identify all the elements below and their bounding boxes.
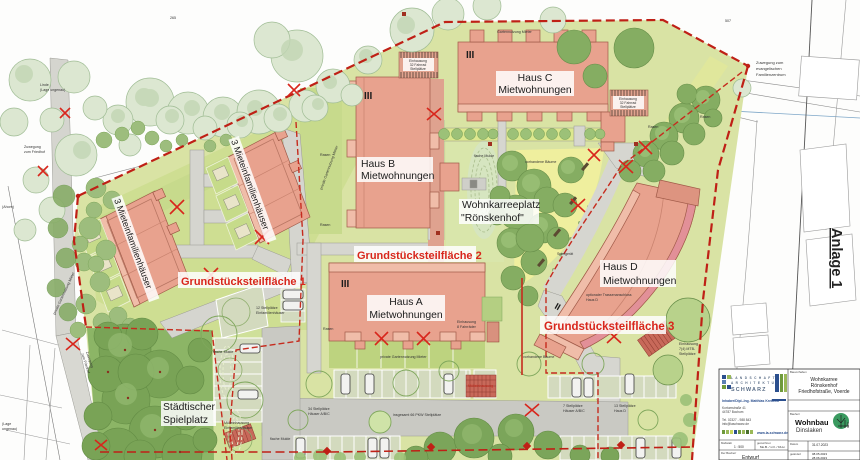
svg-text:265: 265 bbox=[170, 16, 176, 20]
svg-text:(Ahorn): (Ahorn) bbox=[2, 205, 14, 209]
svg-text:Anlage 1: Anlage 1 bbox=[828, 228, 844, 288]
svg-text:evangelischen: evangelischen bbox=[756, 66, 782, 71]
svg-text:vorhandene Bäume: vorhandene Bäume bbox=[523, 355, 554, 359]
svg-text:flache Mulde: flache Mulde bbox=[213, 350, 233, 354]
svg-text:13 Stellplätze: 13 Stellplätze bbox=[614, 404, 636, 408]
svg-text:flache Mulde: flache Mulde bbox=[270, 437, 290, 441]
svg-text:34 Stellplätze: 34 Stellplätze bbox=[308, 407, 330, 411]
svg-text:Einfamilienhäuser: Einfamilienhäuser bbox=[224, 426, 253, 430]
svg-text:Häuser A/B/C: Häuser A/B/C bbox=[563, 409, 585, 413]
svg-text:12 Stellplätze: 12 Stellplätze bbox=[256, 306, 278, 310]
svg-text:III: III bbox=[364, 91, 373, 102]
svg-text:geändert: geändert bbox=[790, 452, 801, 456]
svg-text:Spielgerät: Spielgerät bbox=[557, 252, 573, 256]
svg-text:Rasen: Rasen bbox=[648, 125, 658, 129]
svg-text:Mietwohnungen: Mietwohnungen bbox=[603, 276, 677, 287]
svg-text:Haus D: Haus D bbox=[603, 262, 638, 273]
svg-text:Rasen: Rasen bbox=[323, 327, 333, 331]
svg-text:Stellplätze: Stellplätze bbox=[410, 67, 426, 71]
svg-text:Spielplatz: Spielplatz bbox=[163, 415, 208, 426]
svg-text:Mülleinhausung: Mülleinhausung bbox=[468, 384, 493, 388]
svg-text:Mietwohnungen: Mietwohnungen bbox=[361, 171, 435, 182]
svg-text:Häuser A/B/C: Häuser A/B/C bbox=[308, 412, 330, 416]
svg-text:Bauvorhaben: Bauvorhaben bbox=[790, 370, 807, 374]
svg-text:7 Stellplätze: 7 Stellplätze bbox=[563, 404, 583, 408]
svg-text:7(4) MTB-: 7(4) MTB- bbox=[679, 347, 696, 351]
svg-text:Datum: Datum bbox=[790, 442, 799, 446]
svg-text:28.06.2023: 28.06.2023 bbox=[812, 456, 827, 460]
svg-text:Inhaber/Dipl.-Ing. Matthias Kr: Inhaber/Dipl.-Ing. Matthias Kretteck bbox=[722, 399, 779, 403]
svg-text:Bauherr: Bauherr bbox=[790, 412, 800, 416]
svg-text:"Rönskenhof": "Rönskenhof" bbox=[461, 213, 524, 224]
svg-text:Entwurf: Entwurf bbox=[742, 455, 760, 460]
svg-text:507: 507 bbox=[725, 19, 731, 23]
svg-text:31.07.2023: 31.07.2023 bbox=[812, 443, 828, 447]
svg-text:Einhausung: Einhausung bbox=[457, 320, 476, 324]
svg-text:www.la-schwarz.de: www.la-schwarz.de bbox=[756, 431, 788, 435]
svg-text:III: III bbox=[341, 279, 350, 290]
svg-text:insgesamt 66 PKW Stellplätze: insgesamt 66 PKW Stellplätze bbox=[393, 413, 441, 417]
svg-text:SCHWARZ: SCHWARZ bbox=[731, 387, 767, 393]
svg-text:Familienzentrum: Familienzentrum bbox=[756, 72, 786, 77]
svg-text:Haus B: Haus B bbox=[361, 159, 395, 170]
svg-text:Rasen: Rasen bbox=[700, 115, 710, 119]
svg-text:Dinslaken: Dinslaken bbox=[796, 428, 822, 434]
svg-text:Der Bauherr: Der Bauherr bbox=[721, 451, 736, 455]
svg-text:Mo.B. / v.O. / bb.H.: Mo.B. / v.O. / bb.H. bbox=[760, 445, 785, 449]
svg-text:Gartennutzung Mieter: Gartennutzung Mieter bbox=[497, 30, 533, 34]
svg-text:44787 Bochum: 44787 Bochum bbox=[722, 410, 744, 414]
svg-text:L A N D S C H A F T S: L A N D S C H A F T S bbox=[731, 376, 780, 380]
svg-text:Städtischer: Städtischer bbox=[163, 402, 216, 413]
svg-text:Grundstücksteilfläche 3: Grundstücksteilfläche 3 bbox=[544, 321, 674, 333]
svg-text:private Gartennutzung Mieter: private Gartennutzung Mieter bbox=[380, 355, 427, 359]
svg-text:zum Friedhof: zum Friedhof bbox=[24, 150, 45, 154]
svg-text:Zuwegung zum: Zuwegung zum bbox=[756, 60, 784, 65]
svg-text:Zuwegung: Zuwegung bbox=[24, 145, 41, 149]
svg-text:vorhandene Bäume: vorhandene Bäume bbox=[525, 160, 556, 164]
svg-text:(Lage ungenau): (Lage ungenau) bbox=[40, 88, 65, 92]
svg-text:Linde: Linde bbox=[40, 83, 49, 87]
svg-text:Stellplätze: Stellplätze bbox=[679, 352, 696, 356]
svg-text:flache Mulde: flache Mulde bbox=[474, 154, 494, 158]
svg-text:Einfamilienhäuser: Einfamilienhäuser bbox=[256, 311, 285, 315]
svg-text:8 Fahrräder: 8 Fahrräder bbox=[457, 325, 477, 329]
svg-text:Wohnbau: Wohnbau bbox=[795, 418, 829, 427]
svg-text:Haus C: Haus C bbox=[518, 73, 553, 84]
svg-text:Rasen: Rasen bbox=[320, 153, 330, 157]
svg-text:A R C H I T E K T U R: A R C H I T E K T U R bbox=[731, 381, 780, 385]
svg-text:Rasen: Rasen bbox=[320, 223, 330, 227]
svg-text:Mülleinhausung: Mülleinhausung bbox=[224, 421, 249, 425]
svg-text:Grundstücksteilfläche 2: Grundstücksteilfläche 2 bbox=[357, 250, 482, 262]
svg-text:info@laschwarz.de: info@laschwarz.de bbox=[722, 422, 749, 426]
svg-text:ungenau): ungenau) bbox=[2, 427, 17, 431]
svg-text:Grundstücksteilfläche 1: Grundstücksteilfläche 1 bbox=[181, 276, 306, 288]
svg-text:Mietwohnungen: Mietwohnungen bbox=[369, 310, 443, 321]
svg-text:Einhausung: Einhausung bbox=[679, 342, 698, 346]
svg-text:Friedhofstraße, Voerde: Friedhofstraße, Voerde bbox=[798, 389, 849, 395]
svg-text:Stellplätze: Stellplätze bbox=[620, 105, 636, 109]
svg-text:III: III bbox=[466, 50, 475, 61]
svg-text:Haus D: Haus D bbox=[614, 409, 626, 413]
svg-text:Wohnkarreeplatz: Wohnkarreeplatz bbox=[462, 200, 540, 211]
svg-text:1 : 500: 1 : 500 bbox=[734, 445, 744, 449]
svg-text:optionaler Trassenanschluss: optionaler Trassenanschluss bbox=[586, 293, 632, 297]
svg-text:Haus D: Haus D bbox=[586, 298, 598, 302]
svg-text:Maßstab: Maßstab bbox=[721, 441, 732, 445]
svg-text:(Lage: (Lage bbox=[2, 422, 11, 426]
svg-text:Mietwohnungen: Mietwohnungen bbox=[498, 85, 572, 96]
svg-text:Haus A: Haus A bbox=[389, 297, 423, 308]
